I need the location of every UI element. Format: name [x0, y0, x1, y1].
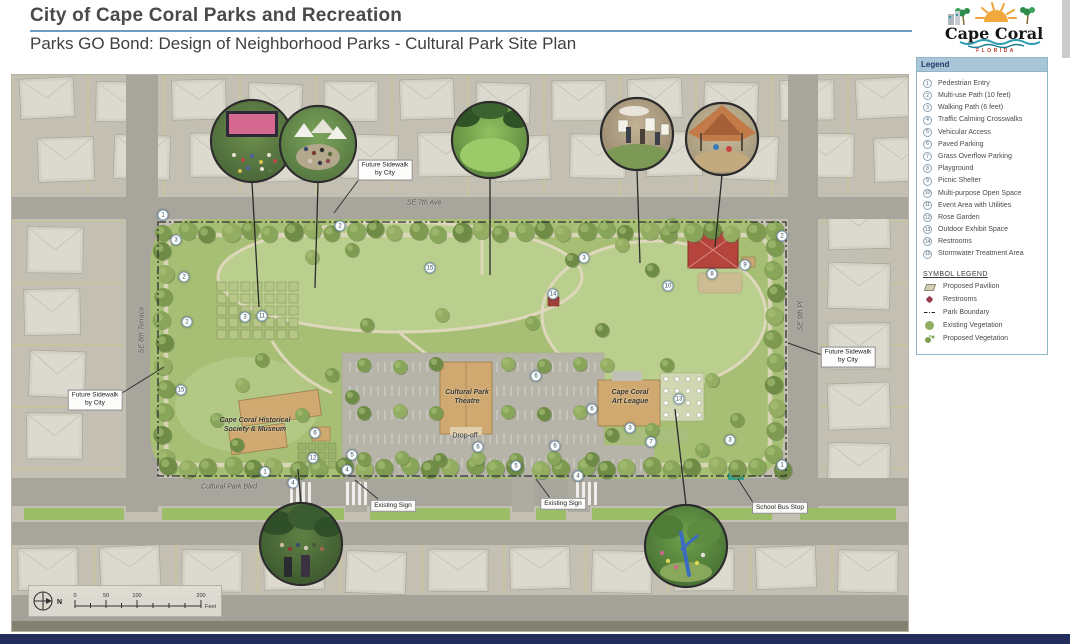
legend-label: Outdoor Exhibit Space	[938, 226, 1008, 233]
map-marker-3: 3	[171, 235, 182, 246]
symbol-item: Existing Vegetation	[924, 321, 1043, 330]
legend-item-3: 3Walking Path (6 feet)	[923, 103, 1043, 112]
proposed-veg-icon	[924, 334, 936, 343]
site-plan-map: Future Sidewalk by CityFuture Sidewalk b…	[12, 75, 908, 631]
map-marker-13: 13	[674, 394, 685, 405]
map-marker-15: 15	[425, 263, 436, 274]
map-marker-6: 6	[587, 404, 598, 415]
legend-number: 11	[923, 201, 932, 210]
legend-number: 10	[923, 189, 932, 198]
map-marker-5: 5	[347, 450, 358, 461]
symbol-legend-title: SYMBOL LEGEND	[923, 271, 1041, 278]
palm-tree-icon-right	[1020, 7, 1035, 24]
map-marker-8: 8	[707, 269, 718, 280]
map-marker-6: 6	[310, 428, 321, 439]
page-edge	[1062, 0, 1070, 58]
map-markers: 132215215398101411361254166661337344125	[12, 75, 908, 631]
symbol-item: Park Boundary	[924, 308, 1043, 317]
symbol-legend-items: Proposed PavilionRestroomsPark BoundaryE…	[917, 282, 1047, 354]
legend-number: 9	[923, 177, 932, 186]
legend-item-1: 1Pedestrian Entry	[923, 79, 1043, 88]
map-marker-2: 2	[182, 317, 193, 328]
legend-number: 6	[923, 140, 932, 149]
legend-label: Restrooms	[938, 238, 972, 245]
map-marker-3: 3	[579, 253, 590, 264]
page-title: City of Cape Coral Parks and Recreation	[30, 5, 402, 27]
legend-title: Legend	[917, 58, 1047, 72]
map-marker-12: 12	[308, 453, 319, 464]
symbol-item: Restrooms	[924, 295, 1043, 304]
map-marker-6: 6	[550, 441, 561, 452]
map-marker-4: 4	[573, 471, 584, 482]
logo-state: FLORIDA	[976, 48, 1016, 54]
legend-label: Traffic Calming Crosswalks	[938, 116, 1022, 123]
map-marker-6: 6	[473, 442, 484, 453]
page-subtitle: Parks GO Bond: Design of Neighborhood Pa…	[30, 34, 576, 54]
logo-wordmark: Cape Coral	[945, 24, 1043, 43]
scale-ruler	[75, 600, 201, 608]
legend-item-2: 2Multi-use Path (10 feet)	[923, 91, 1043, 100]
legend-label: Paved Parking	[938, 141, 984, 148]
symbol-label: Park Boundary	[943, 309, 989, 316]
symbol-label: Proposed Pavilion	[943, 283, 999, 290]
scale-tick-200: 200	[196, 593, 205, 599]
north-label: N	[57, 599, 62, 606]
map-marker-5: 5	[511, 461, 522, 472]
legend-label: Stormwater Treatment Area	[938, 250, 1024, 257]
legend-number: 15	[923, 250, 932, 259]
symbol-item: Proposed Vegetation	[924, 334, 1043, 343]
map-marker-4: 4	[342, 465, 353, 476]
scale-tick-50: 50	[103, 593, 109, 599]
map-marker-3: 3	[725, 435, 736, 446]
legend-label: Multi-purpose Open Space	[938, 190, 1021, 197]
legend-item-13: 13Outdoor Exhibit Space	[923, 225, 1043, 234]
map-marker-15: 15	[176, 385, 187, 396]
scale-unit: Feet	[205, 604, 216, 610]
legend-label: Grass Overflow Parking	[938, 153, 1012, 160]
existing-veg-icon	[924, 321, 936, 330]
map-marker-9: 9	[740, 260, 751, 271]
legend-item-10: 10Multi-purpose Open Space	[923, 189, 1043, 198]
map-marker-10: 10	[663, 281, 674, 292]
map-marker-2: 2	[777, 231, 788, 242]
legend-number: 12	[923, 213, 932, 222]
legend-number: 8	[923, 164, 932, 173]
scale-bar: N 0 50 100 200 Feet	[28, 585, 222, 617]
legend-number: 7	[923, 152, 932, 161]
legend-number: 14	[923, 237, 932, 246]
legend-number: 5	[923, 128, 932, 137]
legend-number: 3	[923, 103, 932, 112]
scale-tick-100: 100	[132, 593, 141, 599]
sun-icon	[976, 3, 1016, 22]
legend-item-11: 11Event Area with Utilities	[923, 201, 1043, 210]
legend-label: Pedestrian Entry	[938, 80, 990, 87]
symbol-label: Proposed Vegetation	[943, 335, 1008, 342]
legend-item-14: 14Restrooms	[923, 237, 1043, 246]
scale-tick-0: 0	[73, 593, 76, 599]
map-marker-7: 7	[646, 437, 657, 448]
buildings-icon	[948, 11, 960, 25]
symbol-item: Proposed Pavilion	[924, 282, 1043, 291]
pavilion-icon	[924, 282, 936, 291]
legend-item-7: 7Grass Overflow Parking	[923, 152, 1043, 161]
map-marker-2: 2	[335, 221, 346, 232]
symbol-label: Existing Vegetation	[943, 322, 1003, 329]
legend-item-12: 12Rose Garden	[923, 213, 1043, 222]
page: City of Cape Coral Parks and Recreation …	[0, 0, 1070, 644]
legend-item-15: 15Stormwater Treatment Area	[923, 250, 1043, 259]
legend-item-9: 9Picnic Shelter	[923, 177, 1043, 186]
legend-item-8: 8Playground	[923, 164, 1043, 173]
legend-panel: Legend 1Pedestrian Entry2Multi-use Path …	[916, 57, 1048, 355]
legend-label: Event Area with Utilities	[938, 202, 1011, 209]
header-divider	[30, 30, 912, 32]
north-compass-icon	[34, 592, 52, 610]
map-marker-4: 4	[288, 478, 299, 489]
legend-item-5: 5Vehicular Access	[923, 128, 1043, 137]
footer-bar	[0, 634, 1070, 644]
restrooms-icon	[924, 295, 936, 304]
map-marker-14: 14	[548, 289, 559, 300]
cape-coral-logo: Cape Coral FLORIDA	[930, 2, 1058, 54]
legend-item-4: 4Traffic Calming Crosswalks	[923, 116, 1043, 125]
legend-number: 1	[923, 79, 932, 88]
legend-label: Picnic Shelter	[938, 177, 981, 184]
legend-number: 13	[923, 225, 932, 234]
legend-items: 1Pedestrian Entry2Multi-use Path (10 fee…	[917, 72, 1047, 264]
legend-label: Walking Path (6 feet)	[938, 104, 1003, 111]
legend-label: Vehicular Access	[938, 129, 991, 136]
map-marker-1: 1	[777, 460, 788, 471]
symbol-label: Restrooms	[943, 296, 977, 303]
legend-number: 4	[923, 116, 932, 125]
map-marker-1: 1	[260, 467, 271, 478]
legend-label: Rose Garden	[938, 214, 980, 221]
map-marker-3: 3	[240, 312, 251, 323]
map-marker-2: 2	[179, 272, 190, 283]
legend-label: Playground	[938, 165, 973, 172]
boundary-icon	[924, 308, 936, 317]
map-marker-1: 1	[158, 210, 169, 221]
map-marker-11: 11	[257, 311, 268, 322]
legend-label: Multi-use Path (10 feet)	[938, 92, 1011, 99]
map-marker-6: 6	[531, 371, 542, 382]
map-marker-3: 3	[625, 423, 636, 434]
legend-item-6: 6Paved Parking	[923, 140, 1043, 149]
legend-number: 2	[923, 91, 932, 100]
